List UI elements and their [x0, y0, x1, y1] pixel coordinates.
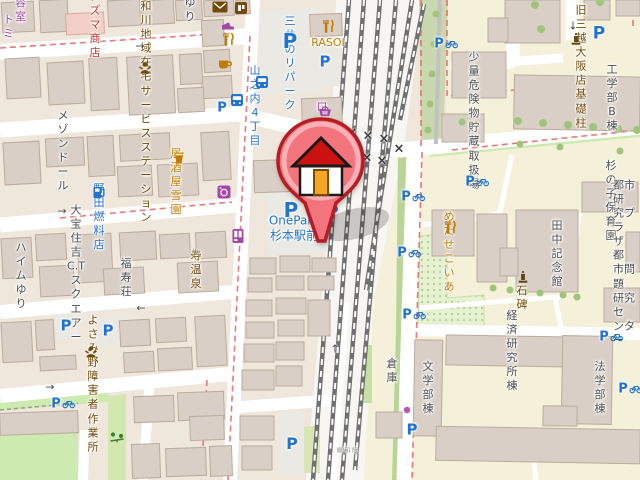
map-canvas[interactable]: 容室トミアズマ商 店ゆり大和川地 域在宅サー ビスステー ションメゾン ドール居…: [0, 0, 640, 480]
